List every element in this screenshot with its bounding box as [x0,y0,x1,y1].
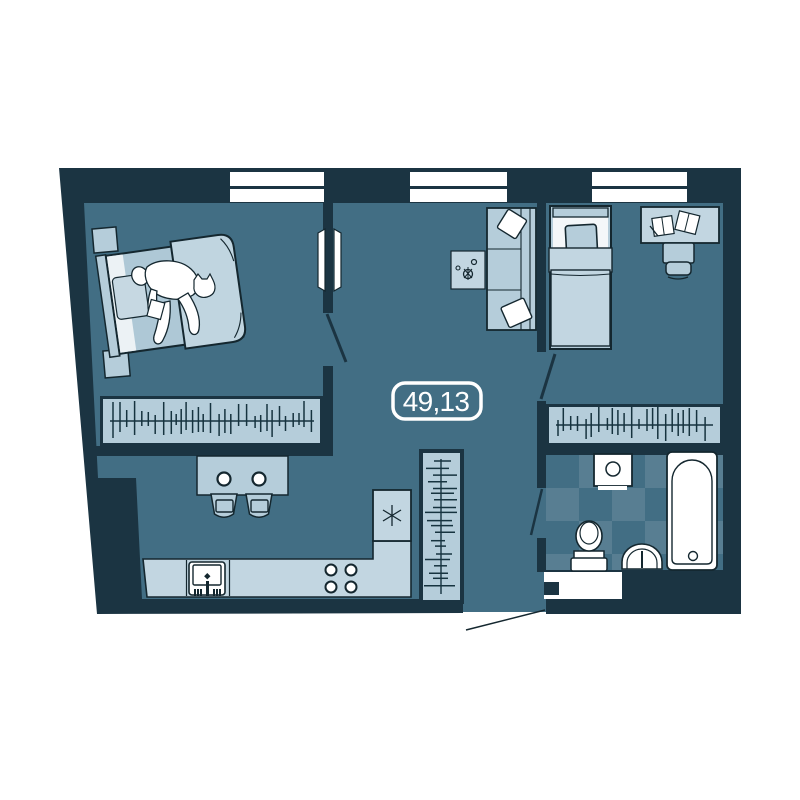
svg-text:49,13: 49,13 [403,386,470,417]
